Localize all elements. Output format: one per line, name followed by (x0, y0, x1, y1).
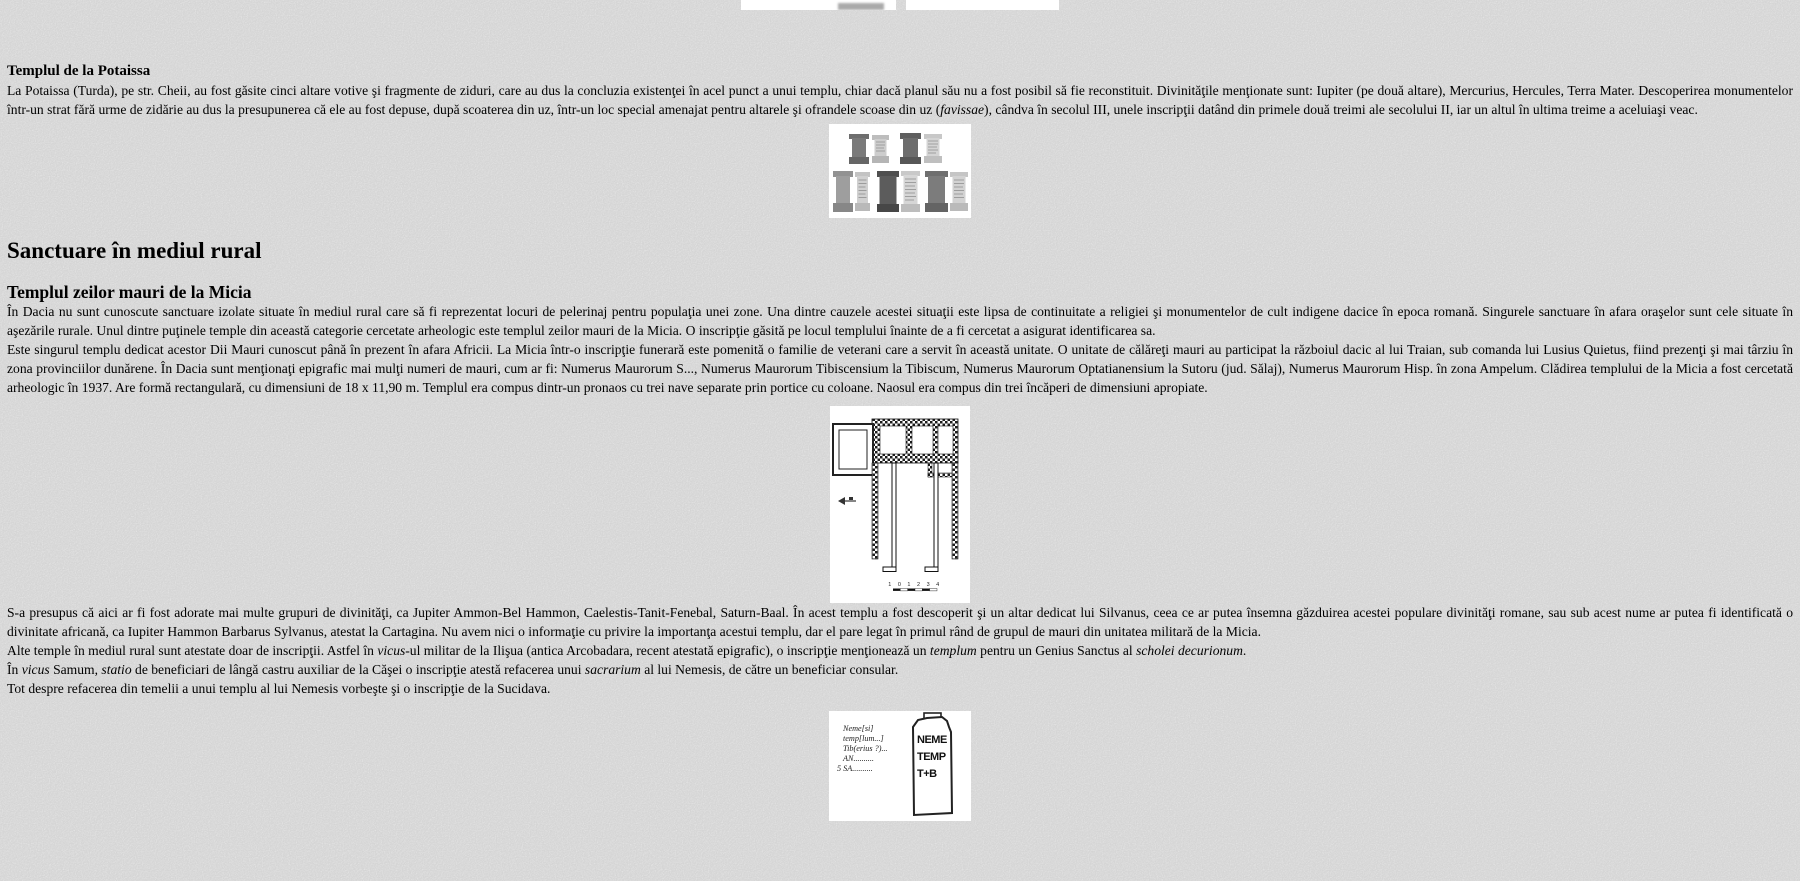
paragraph-sucidava: Tot despre refacerea din temelii a unui … (7, 679, 1793, 698)
altar-photo (833, 171, 853, 212)
heading-sanctuare-rural: Sanctuare în mediul rural (7, 237, 1793, 264)
stone-letters-line: NEME (917, 734, 947, 746)
heading-templul-micia: Templul zeilor mauri de la Micia (7, 282, 1793, 302)
inscription-stone-drawing: NEME TEMP T+B (913, 713, 952, 815)
paragraph-divinities: S-a presupus că aici ar fi fost adorate … (7, 603, 1793, 641)
paragraph-samum: În vicus Samum, statio de beneficiari de… (7, 660, 1793, 679)
plan-annex-room (833, 424, 873, 475)
scale-numbers: 1 0 1 2 3 4 (888, 582, 942, 588)
plan-left-wall (872, 463, 878, 559)
altar-photo (872, 135, 889, 163)
transcription-line: Tib(erius ?)... (843, 744, 888, 753)
altar-photo (924, 134, 942, 163)
plan-scale-bar: 1 0 1 2 3 4 (888, 582, 942, 591)
figure-altars-image (829, 124, 971, 218)
transcription-line: temp[lum...] (843, 734, 884, 743)
temple-plan-drawing: 1 0 1 2 3 4 (830, 406, 970, 603)
altar-photo (901, 171, 920, 212)
figure-temple-plan-image: 1 0 1 2 3 4 (830, 406, 970, 603)
figure-inscription-wrapper: Neme[si] temp[lum...] Tib(erius ?)... AN… (7, 711, 1793, 821)
inscription-drawing: Neme[si] temp[lum...] Tib(erius ?)... AN… (829, 711, 971, 821)
figure-altars-wrapper (7, 124, 1793, 218)
top-cropped-figures (0, 0, 1800, 10)
figure-caption-smudge (838, 3, 884, 10)
paragraph-potaissa: La Potaissa (Turda), pe str. Cheii, au f… (7, 81, 1793, 119)
altar-photo (950, 172, 968, 211)
figure-inscription-image: Neme[si] temp[lum...] Tib(erius ?)... AN… (829, 711, 971, 821)
transcription-line: Neme[si] (842, 724, 873, 733)
figure-temple-plan-wrapper: 1 0 1 2 3 4 (7, 406, 1793, 603)
document-page: Templul de la Potaissa La Potaissa (Turd… (0, 0, 1800, 881)
paragraph-micia-2: Este singurul templu dedicat acestor Dii… (7, 340, 1793, 397)
top-cropped-figure-left (741, 0, 896, 10)
paragraph-micia-1: În Dacia nu sunt cunoscute sanctuare izo… (7, 302, 1793, 340)
heading-templul-potaissa: Templul de la Potaissa (7, 62, 1793, 81)
transcription-line: AN.......... (842, 754, 874, 763)
altar-photo (877, 171, 899, 212)
altar-photo (849, 134, 869, 164)
altar-photo (855, 172, 870, 211)
top-cropped-figure-right (906, 0, 1059, 10)
transcription-line: 5 SA.......... (837, 764, 873, 773)
altars-photo-montage (829, 124, 971, 218)
article-content: Templul de la Potaissa La Potaissa (Turd… (0, 62, 1800, 821)
paragraph-other-temples: Alte temple în mediul rural sunt atestat… (7, 641, 1793, 660)
altar-photo (925, 171, 948, 212)
stone-letters-line: T+B (917, 768, 937, 780)
plan-right-wall (952, 463, 958, 559)
stone-letters-line: TEMP (917, 751, 946, 763)
altar-photo (900, 133, 921, 164)
